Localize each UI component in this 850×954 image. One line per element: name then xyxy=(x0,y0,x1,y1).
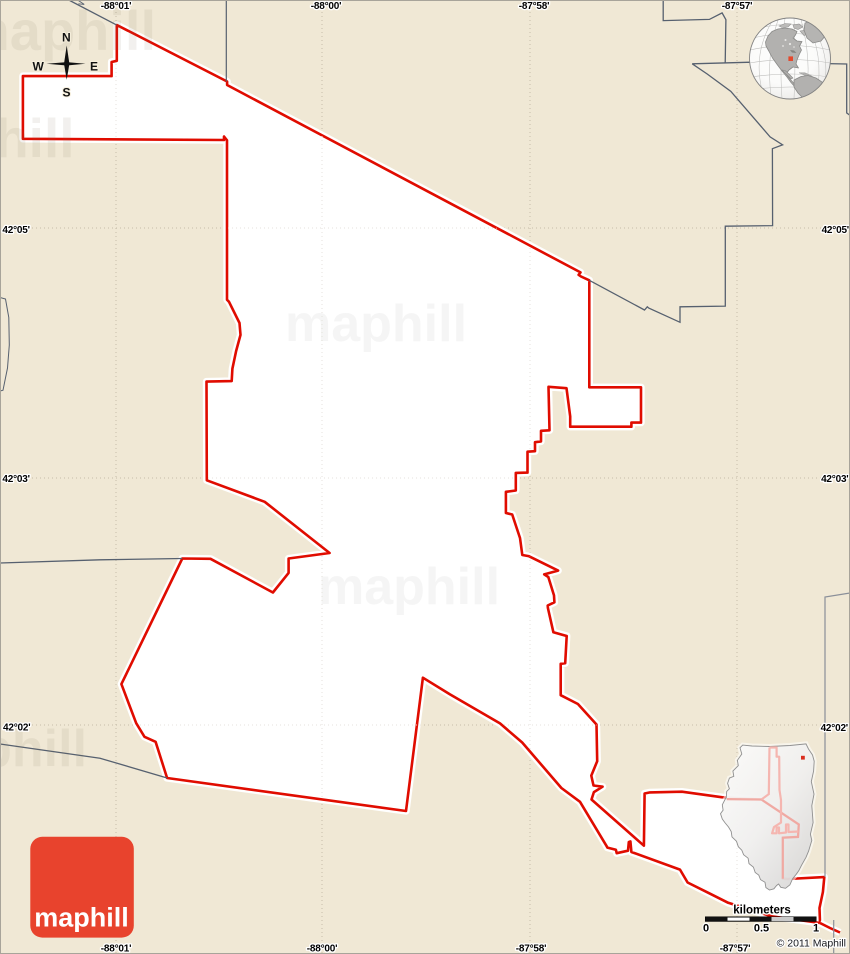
svg-text:42°05': 42°05' xyxy=(822,225,849,236)
svg-text:42°02': 42°02' xyxy=(821,723,848,734)
svg-text:-87°58': -87°58' xyxy=(516,944,547,954)
svg-text:E: E xyxy=(90,60,98,74)
svg-text:1: 1 xyxy=(813,923,819,935)
svg-text:maphill: maphill xyxy=(0,0,156,62)
svg-text:42°05': 42°05' xyxy=(2,225,29,236)
svg-text:42°03': 42°03' xyxy=(2,474,29,485)
svg-text:maphill: maphill xyxy=(318,558,500,616)
svg-text:-88°01': -88°01' xyxy=(101,944,132,954)
svg-text:-87°58': -87°58' xyxy=(519,1,550,12)
svg-text:-88°00': -88°00' xyxy=(311,1,342,12)
svg-text:maphill: maphill xyxy=(285,295,467,353)
svg-text:-88°00': -88°00' xyxy=(307,944,338,954)
svg-text:kilometers: kilometers xyxy=(733,905,791,917)
svg-text:42°02': 42°02' xyxy=(3,723,30,734)
svg-text:maphill: maphill xyxy=(34,903,129,933)
svg-text:-87°57': -87°57' xyxy=(720,944,751,954)
svg-text:-87°57': -87°57' xyxy=(722,1,753,12)
svg-text:0: 0 xyxy=(703,923,709,935)
svg-text:0.5: 0.5 xyxy=(754,923,769,935)
svg-text:W: W xyxy=(33,60,45,74)
svg-text:S: S xyxy=(63,86,71,100)
svg-text:-88°01': -88°01' xyxy=(101,1,132,12)
svg-text:© 2011 Maphill: © 2011 Maphill xyxy=(777,938,846,950)
svg-text:N: N xyxy=(62,31,71,45)
svg-text:42°03': 42°03' xyxy=(821,474,848,485)
svg-text:maphill: maphill xyxy=(0,107,75,169)
